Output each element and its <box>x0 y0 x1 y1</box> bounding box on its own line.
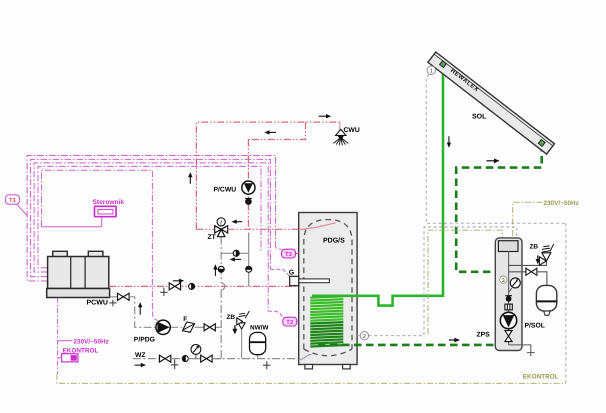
svg-text:T3: T3 <box>285 251 293 258</box>
svg-text:EKONTROL: EKONTROL <box>523 373 559 380</box>
svg-text:NW/W: NW/W <box>250 325 269 332</box>
svg-text:P/PDG: P/PDG <box>134 337 155 344</box>
svg-text:T2: T2 <box>286 319 294 326</box>
svg-text:230V/~50Hz: 230V/~50Hz <box>544 200 579 207</box>
svg-text:PCWU: PCWU <box>87 299 108 306</box>
svg-text:ZPS: ZPS <box>477 332 491 339</box>
svg-text:ZB: ZB <box>530 243 539 250</box>
svg-text:1: 1 <box>430 69 433 75</box>
svg-text:T1: T1 <box>9 197 17 204</box>
svg-text:PDG/S: PDG/S <box>323 236 345 244</box>
svg-text:Sterownik: Sterownik <box>93 199 125 206</box>
svg-text:ZB: ZB <box>227 314 236 321</box>
svg-text:WZ: WZ <box>135 352 146 359</box>
svg-text:230V/~50Hz: 230V/~50Hz <box>74 338 109 345</box>
svg-text:CWU: CWU <box>344 127 360 134</box>
svg-text:ZT: ZT <box>208 234 217 241</box>
svg-text:P/CWU: P/CWU <box>214 186 237 193</box>
svg-text:3: 3 <box>502 278 505 284</box>
svg-text:t: t <box>220 219 222 226</box>
svg-text:2: 2 <box>363 334 366 340</box>
svg-text:P/SOL: P/SOL <box>525 322 545 329</box>
svg-text:SOL: SOL <box>472 113 487 120</box>
svg-text:G: G <box>289 269 295 276</box>
